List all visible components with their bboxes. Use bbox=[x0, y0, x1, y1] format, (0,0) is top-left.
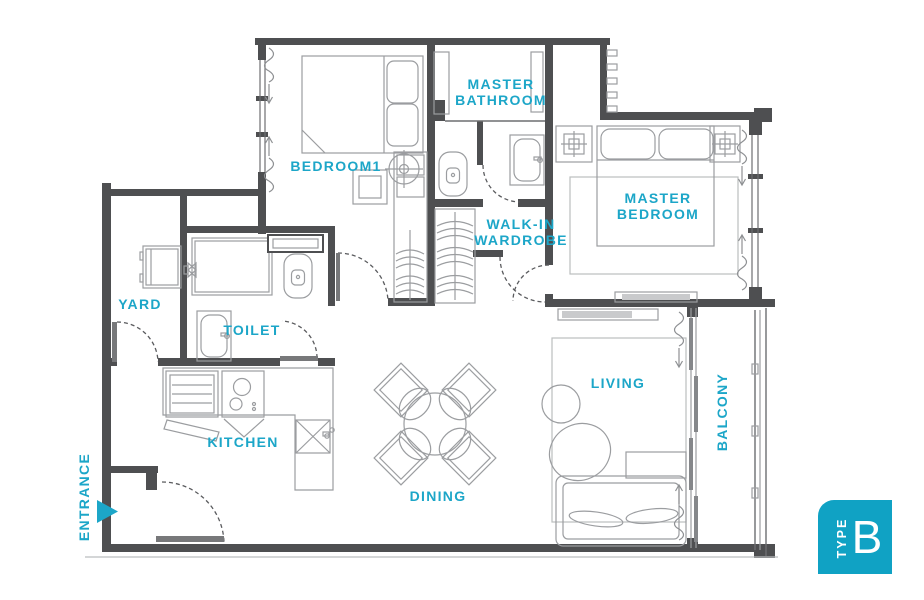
bed-king bbox=[597, 126, 714, 246]
kitchen-fixtures bbox=[163, 368, 334, 490]
bedroom1-wardrobe-cabinet bbox=[394, 152, 427, 302]
kitchen-label: KITCHEN bbox=[207, 434, 278, 450]
wall-window-mullion-b1b bbox=[256, 132, 268, 137]
wall-yard-bottom-b bbox=[158, 358, 280, 366]
stove-icon bbox=[222, 371, 264, 437]
wall-mbr-left-jamb bbox=[545, 294, 553, 307]
wall-bedroom1-left-upper bbox=[258, 38, 266, 60]
yard-door-arc bbox=[117, 322, 158, 362]
wall-bedroom1-left-lower bbox=[258, 172, 266, 234]
balcony-label: BALCONY bbox=[714, 373, 730, 451]
nightstand-top bbox=[359, 176, 381, 198]
walk-in-wardrobe-fixtures bbox=[435, 209, 475, 303]
bedroom1-door-leaf bbox=[336, 253, 340, 301]
yard-label: YARD bbox=[118, 296, 162, 312]
washing-machine-icon bbox=[140, 246, 181, 288]
living-rug bbox=[552, 338, 686, 522]
master-bathroom-fixtures bbox=[439, 135, 544, 196]
wall-bath-stub-v bbox=[477, 121, 483, 165]
curtain-icon bbox=[675, 312, 684, 367]
ceiling-fan-icon bbox=[385, 150, 423, 188]
wall-entry-jamb bbox=[146, 466, 157, 490]
yard-door-leaf bbox=[112, 322, 117, 362]
toilet-door-leaf bbox=[280, 356, 318, 361]
room-labels: BEDROOM1 MASTER BATHROOM MASTER BEDROOM … bbox=[118, 76, 730, 504]
toilet-door-arc bbox=[282, 321, 317, 358]
floor-plan-svg: BEDROOM1 MASTER BATHROOM MASTER BEDROOM … bbox=[0, 0, 924, 600]
toilet-label: TOILET bbox=[223, 322, 280, 338]
doors bbox=[112, 165, 549, 544]
dining-chair bbox=[374, 431, 428, 485]
badge-type-label: TYPE bbox=[835, 518, 849, 559]
walk-in-wardrobe-label-line1: WALK-IN bbox=[487, 216, 556, 232]
walk-in-wardrobe-label-line2: WARDROBE bbox=[474, 232, 568, 248]
dining-label: DINING bbox=[410, 488, 467, 504]
kitchen-sink-icon bbox=[296, 420, 334, 453]
wall-mbr-bottom bbox=[545, 299, 775, 307]
sofa bbox=[556, 452, 686, 546]
toilet-fixture-icon bbox=[284, 254, 312, 298]
dining-table bbox=[404, 393, 466, 455]
wall-window-mullion-mbr-a bbox=[748, 174, 763, 179]
master-bathroom-label-line1: MASTER bbox=[468, 76, 535, 92]
wall-bath-right bbox=[545, 44, 553, 120]
bedroom1-furniture bbox=[302, 56, 427, 302]
toilet-fixture-icon bbox=[439, 152, 467, 196]
wardrobe-door-arc bbox=[500, 257, 545, 302]
duct-box bbox=[268, 235, 323, 252]
yard-fixtures bbox=[140, 246, 181, 288]
entrance-door-leaf bbox=[156, 536, 224, 542]
bedroom1-label: BEDROOM1 bbox=[290, 158, 381, 174]
lamp-icon bbox=[561, 131, 587, 157]
toilet-room-fixtures bbox=[184, 235, 323, 361]
curtain-icon bbox=[738, 235, 747, 290]
kitchen-counter bbox=[163, 368, 333, 490]
master-bedroom-label-line1: MASTER bbox=[625, 190, 692, 206]
dining-furniture bbox=[374, 363, 496, 485]
shower-area bbox=[192, 238, 272, 295]
wall-mbr-top bbox=[600, 112, 758, 120]
living-label: LIVING bbox=[591, 375, 645, 391]
wall-wardrobe-south bbox=[473, 250, 503, 257]
wall-toilet-bottom bbox=[318, 358, 335, 366]
entrance-label: ENTRANCE bbox=[76, 453, 92, 541]
side-table bbox=[542, 385, 580, 423]
balcony-railing bbox=[752, 308, 766, 556]
wall-left bbox=[102, 183, 111, 552]
living-furniture bbox=[540, 309, 686, 546]
dining-chair bbox=[374, 363, 428, 417]
wall-toilet-right bbox=[328, 226, 335, 306]
entrance-door-arc bbox=[162, 482, 224, 544]
curtain-icon bbox=[738, 130, 747, 185]
wall-bath-bottom-left bbox=[435, 199, 483, 207]
sliding-door bbox=[689, 308, 698, 548]
dining-chair bbox=[442, 363, 496, 417]
fridge-icon bbox=[164, 371, 219, 441]
floor-plan-page: BEDROOM1 MASTER BATHROOM MASTER BEDROOM … bbox=[0, 0, 924, 600]
badge-unit-letter: B bbox=[852, 511, 883, 563]
nightstand bbox=[353, 170, 387, 204]
bed-double bbox=[302, 56, 423, 153]
dining-chair bbox=[442, 431, 496, 485]
wall-bottom bbox=[102, 544, 775, 552]
type-b-badge: TYPE B bbox=[818, 500, 892, 574]
master-bedroom-door-arc bbox=[513, 265, 549, 301]
wall-window-cap-top bbox=[749, 119, 762, 135]
bedroom1-door-arc bbox=[338, 253, 388, 301]
wall-toilet-top bbox=[180, 226, 335, 233]
master-bathroom-label-line2: BATHROOM bbox=[455, 92, 547, 108]
wall-top bbox=[255, 38, 610, 45]
bathroom-sink-icon bbox=[510, 135, 544, 185]
wall-bath-zone-right bbox=[600, 38, 607, 120]
wall-window-mullion-mbr-b bbox=[748, 228, 763, 233]
master-bedroom-label-line2: BEDROOM bbox=[617, 206, 699, 222]
lamp-icon bbox=[712, 131, 738, 157]
wall-bath-stub-h bbox=[435, 100, 445, 121]
